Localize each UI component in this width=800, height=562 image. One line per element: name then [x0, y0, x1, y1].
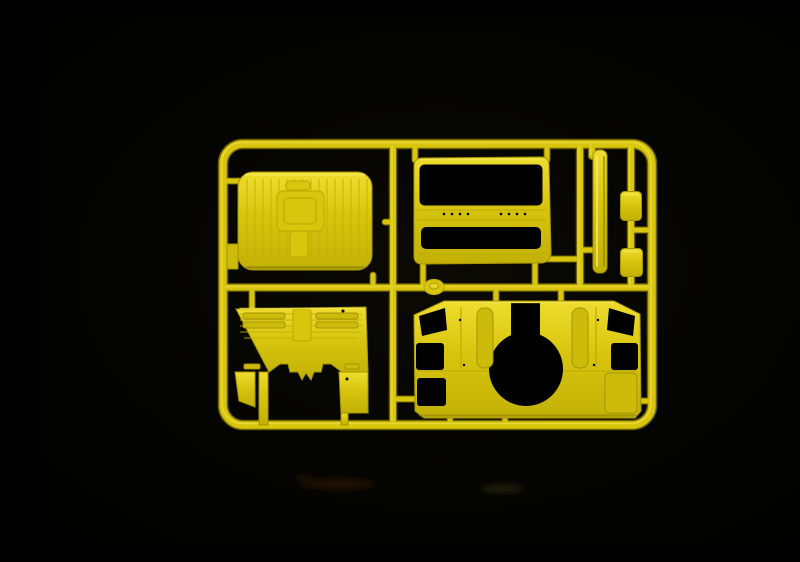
mirror-housing-upper-part: [621, 192, 642, 221]
rear-wall-left-leg: [259, 372, 268, 425]
side-trim-strip-part: [593, 150, 607, 273]
right-door-panel: [572, 308, 588, 368]
cab-roof-part: [238, 172, 372, 270]
left-mid-opening: [416, 343, 444, 370]
injection-gate-boss: [424, 280, 444, 295]
roof-hatch-hinge: [290, 231, 308, 257]
right-mid-opening: [611, 343, 638, 370]
tunnel-top-slot: [511, 303, 540, 343]
sprue-photo: [40, 16, 800, 546]
cab-floor-tunnel-part: [414, 301, 641, 418]
right-lower-panel: [605, 373, 637, 413]
rear-wall-centre-plate: [293, 309, 311, 341]
windscreen-opening: [420, 165, 543, 206]
left-lower-opening: [417, 378, 446, 406]
rear-wall-right-flap: [339, 372, 368, 413]
engine-tunnel-opening: [489, 332, 563, 406]
photo-stage: Photograph of a bright yellow injection-…: [40, 16, 800, 546]
roof-front-vent: [286, 181, 310, 190]
grille-opening: [421, 227, 541, 249]
cab-front-panel-part: [414, 157, 551, 264]
rear-wall-right-leg: [341, 413, 348, 425]
left-door-panel: [477, 308, 493, 368]
mirror-housing-lower-part: [621, 249, 643, 277]
runner-label-tab: [227, 244, 238, 269]
